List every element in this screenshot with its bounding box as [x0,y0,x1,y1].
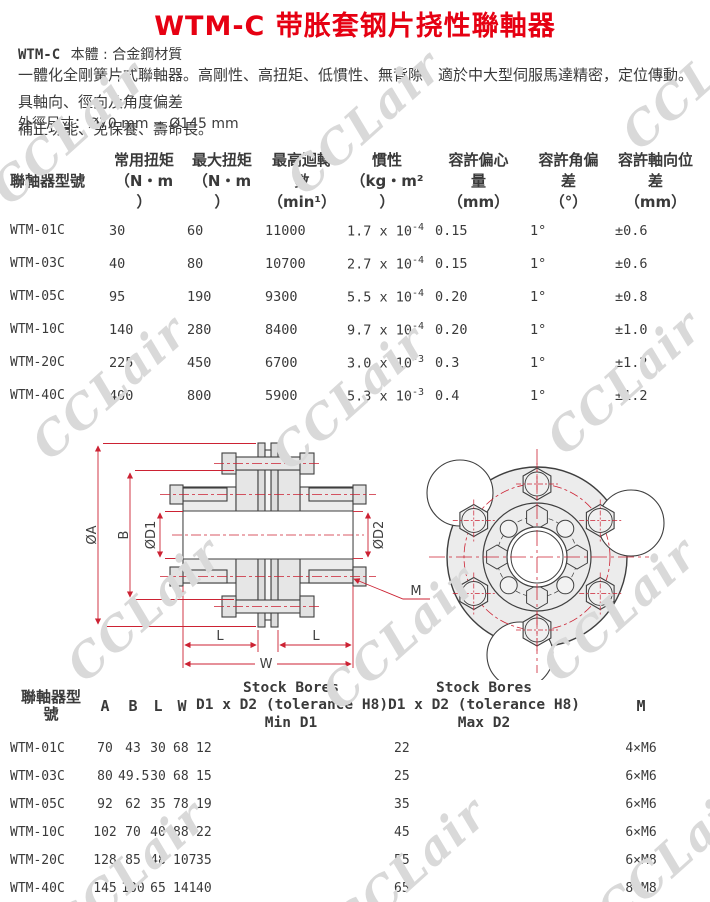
cell-b: 49.5 [118,762,148,790]
dim-header-b: B [118,678,148,734]
spec-header-model: 聯軸器型號 [10,148,105,214]
cell-inertia: 3.0 x 10-3 [343,346,431,379]
cell-inertia: 9.7 x 10-4 [343,313,431,346]
cell-m: 8×M8 [582,874,700,902]
spec-header-angular: 容許角偏 差（°） [526,148,611,214]
dim-label-dia-d1: ØD1 [144,521,159,550]
cell-eccentricity: 0.4 [431,379,526,412]
spec-header-eccentricity: 容許偏心 量（mm） [431,148,526,214]
dim-label-dia-d2: ØD2 [372,521,387,550]
table-row: WTM-05C9519093005.5 x 10-40.201°±0.8 [10,280,700,313]
front-view-drawing [427,449,664,680]
dim-label-w: W [260,657,273,672]
cell-min_d1: 12 [196,734,386,762]
table-row: WTM-40C1451006514140658×M8 [10,874,700,902]
cell-m: 6×M6 [582,790,700,818]
cell-min_d1: 15 [196,762,386,790]
dim-label-dia-a: ØA [85,525,100,544]
cell-max_speed: 5900 [261,379,343,412]
cell-model: WTM-05C [10,280,105,313]
cell-normal_torque: 95 [105,280,183,313]
cell-normal_torque: 40 [105,247,183,280]
cell-a: 80 [92,762,118,790]
cell-inertia: 5.5 x 10-4 [343,280,431,313]
cell-eccentricity: 0.15 [431,247,526,280]
cell-model: WTM-20C [10,346,105,379]
cell-max_speed: 6700 [261,346,343,379]
spec-header-inertia: 慣性（kg・m² ） [343,148,431,214]
inner-bolt-circle [500,520,517,537]
cell-axial: ±0.6 [611,247,700,280]
cell-w: 68 [168,762,196,790]
model-label: WTM-C [18,47,60,63]
cell-angular: 1° [526,346,611,379]
cell-model: WTM-10C [10,313,105,346]
dim-header-m: M [582,678,700,734]
dimension-table: 聯軸器型 號 A B L W Stock Bores D1 x D2 (tole… [10,678,700,902]
cell-b: 62 [118,790,148,818]
cell-model: WTM-05C [10,790,92,818]
spec-table-body: WTM-01C3060110001.7 x 10-40.151°±0.6WTM-… [10,214,700,412]
table-row: WTM-05C9262357819356×M6 [10,790,700,818]
cell-inertia: 1.7 x 10-4 [343,214,431,247]
cell-max_speed: 9300 [261,280,343,313]
cell-max_torque: 800 [183,379,261,412]
spec-table-header: 聯軸器型號 常用扭矩（N・m ） 最大扭矩（N・m ） 最高迴轉 數（min¹）… [10,148,700,214]
dim-header-max-d2: Stock Bores D1 x D2 (tolerance H8) Max D… [386,678,582,734]
cell-min_d1: 19 [196,790,386,818]
cell-w: 107 [168,846,196,874]
cell-max_d2: 25 [386,762,582,790]
cell-angular: 1° [526,379,611,412]
cell-a: 92 [92,790,118,818]
table-row: WTM-20C128854810735556×M8 [10,846,700,874]
cell-a: 70 [92,734,118,762]
cell-min_d1: 35 [196,846,386,874]
outer-diameter-range: 外徑尺寸：Ø70 mm ~ Ø145 mm [18,113,239,133]
table-row: WTM-01C3060110001.7 x 10-40.151°±0.6 [10,214,700,247]
dim-header-model: 聯軸器型 號 [10,678,92,734]
dim-label-b: B [117,531,132,540]
cell-max_d2: 65 [386,874,582,902]
cell-normal_torque: 140 [105,313,183,346]
cell-m: 6×M6 [582,818,700,846]
dimension-table-header: 聯軸器型 號 A B L W Stock Bores D1 x D2 (tole… [10,678,700,734]
material-text: 本體 : 合金鋼材質 [71,47,183,63]
exponent: -4 [412,255,424,266]
exponent: -4 [412,321,424,332]
cell-max_d2: 55 [386,846,582,874]
spec-header-axial: 容許軸向位 差（mm） [611,148,700,214]
table-row: WTM-03C4080107002.7 x 10-40.151°±0.6 [10,247,700,280]
cell-model: WTM-03C [10,247,105,280]
cell-m: 4×M6 [582,734,700,762]
cell-w: 68 [168,734,196,762]
cell-a: 102 [92,818,118,846]
cell-normal_torque: 225 [105,346,183,379]
catalog-page: WTM-C 带胀套钢片挠性聯軸器 WTM-C 本體 : 合金鋼材質 一體化全剛簧… [0,0,710,902]
dim-header-a: A [92,678,118,734]
dim-header-l: L [148,678,168,734]
inner-bolt-circle [500,577,517,594]
exponent: -3 [412,387,424,398]
cell-max_torque: 190 [183,280,261,313]
dim-header-w: W [168,678,196,734]
cell-axial: ±1.2 [611,346,700,379]
technical-drawing: ØA B ØD1 ØD2 L L W M [0,418,710,680]
cell-l: 65 [148,874,168,902]
dim-header-min-d1: Stock Bores D1 x D2 (tolerance H8) Min D… [196,678,386,734]
cell-max_d2: 22 [386,734,582,762]
cell-m: 6×M8 [582,846,700,874]
cell-min_d1: 40 [196,874,386,902]
inner-bolt-circle [557,577,574,594]
exponent: -3 [412,354,424,365]
table-row: WTM-20C22545067003.0 x 10-30.31°±1.2 [10,346,700,379]
cell-m: 6×M6 [582,762,700,790]
cell-eccentricity: 0.3 [431,346,526,379]
cell-axial: ±1.2 [611,379,700,412]
cell-eccentricity: 0.20 [431,280,526,313]
cell-axial: ±0.6 [611,214,700,247]
table-row: WTM-40C40080059005.3 x 10-30.41°±1.2 [10,379,700,412]
spec-header-max-speed: 最高迴轉 數（min¹） [261,148,343,214]
cell-b: 43 [118,734,148,762]
spec-header-normal-torque: 常用扭矩（N・m ） [105,148,183,214]
cell-angular: 1° [526,214,611,247]
cell-min_d1: 22 [196,818,386,846]
page-title: WTM-C 带胀套钢片挠性聯軸器 [0,4,710,43]
cell-eccentricity: 0.20 [431,313,526,346]
spec-table: 聯軸器型號 常用扭矩（N・m ） 最大扭矩（N・m ） 最高迴轉 數（min¹）… [10,148,700,412]
cell-w: 141 [168,874,196,902]
cell-max_speed: 8400 [261,313,343,346]
cell-max_d2: 35 [386,790,582,818]
cell-angular: 1° [526,280,611,313]
cell-w: 88 [168,818,196,846]
cell-l: 48 [148,846,168,874]
cell-a: 145 [92,874,118,902]
cell-l: 30 [148,762,168,790]
cell-model: WTM-40C [10,379,105,412]
cell-model: WTM-20C [10,846,92,874]
cell-max_torque: 60 [183,214,261,247]
cell-l: 30 [148,734,168,762]
cell-max_speed: 10700 [261,247,343,280]
dimension-table-body: WTM-01C7043306812224×M6WTM-03C8049.53068… [10,734,700,902]
cell-model: WTM-01C [10,214,105,247]
table-row: WTM-10C10270408822456×M6 [10,818,700,846]
cell-inertia: 5.3 x 10-3 [343,379,431,412]
cell-angular: 1° [526,247,611,280]
exponent: -4 [412,288,424,299]
spec-header-max-torque: 最大扭矩（N・m ） [183,148,261,214]
cell-normal_torque: 30 [105,214,183,247]
exponent: -4 [412,222,424,233]
cell-max_d2: 45 [386,818,582,846]
cell-l: 35 [148,790,168,818]
cell-b: 70 [118,818,148,846]
cell-model: WTM-40C [10,874,92,902]
cell-a: 128 [92,846,118,874]
inner-bolt-circle [557,520,574,537]
cell-model: WTM-01C [10,734,92,762]
cell-b: 100 [118,874,148,902]
cell-w: 78 [168,790,196,818]
cell-max_torque: 280 [183,313,261,346]
cell-axial: ±0.8 [611,280,700,313]
cell-max_speed: 11000 [261,214,343,247]
dim-label-m: M [410,584,421,599]
cell-max_torque: 450 [183,346,261,379]
material-line: WTM-C 本體 : 合金鋼材質 [18,44,182,64]
cell-axial: ±1.0 [611,313,700,346]
dim-label-l-right: L [312,629,320,644]
cell-max_torque: 80 [183,247,261,280]
dim-label-l-left: L [216,629,224,644]
cell-inertia: 2.7 x 10-4 [343,247,431,280]
cell-angular: 1° [526,313,611,346]
cell-model: WTM-10C [10,818,92,846]
table-row: WTM-03C8049.5306815256×M6 [10,762,700,790]
cell-eccentricity: 0.15 [431,214,526,247]
table-row: WTM-10C14028084009.7 x 10-40.201°±1.0 [10,313,700,346]
cell-model: WTM-03C [10,762,92,790]
cell-normal_torque: 400 [105,379,183,412]
cell-l: 40 [148,818,168,846]
cell-b: 85 [118,846,148,874]
table-row: WTM-01C7043306812224×M6 [10,734,700,762]
